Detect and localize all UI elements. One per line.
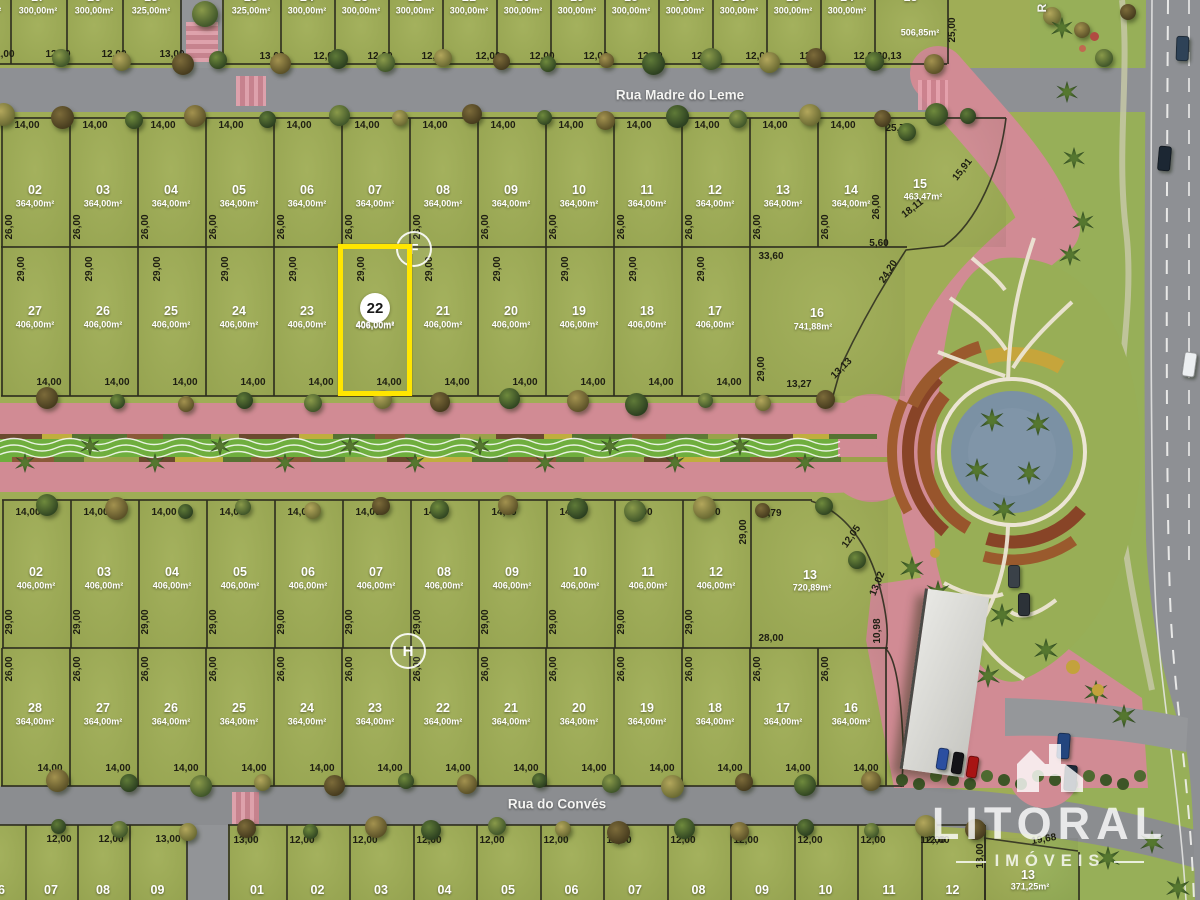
- dimension-label[interactable]: 26,00: [481, 214, 491, 239]
- lot-number[interactable]: 18: [640, 305, 654, 318]
- dimension-label[interactable]: 14,00: [218, 121, 243, 131]
- tree-icon[interactable]: [430, 392, 450, 412]
- dimension-label[interactable]: 14,00: [580, 378, 605, 388]
- dimension-label[interactable]: 26,00: [5, 214, 15, 239]
- dimension-label[interactable]: 26,00: [5, 656, 15, 681]
- dimension-label[interactable]: 29,00: [493, 256, 503, 281]
- lot-area[interactable]: 406,00m²: [152, 320, 191, 329]
- tree-icon[interactable]: [457, 774, 477, 794]
- lot-number[interactable]: 22: [408, 0, 422, 3]
- dimension-label[interactable]: 12,00: [46, 835, 71, 845]
- lot-area[interactable]: 300,00m²: [19, 7, 58, 16]
- dimension-label[interactable]: 26,00: [549, 656, 559, 681]
- dimension-label[interactable]: 12,00: [860, 836, 885, 846]
- lot-number[interactable]: 24: [232, 305, 246, 318]
- tree-icon[interactable]: [848, 551, 866, 569]
- lot-number[interactable]: 09: [504, 184, 518, 197]
- tree-icon[interactable]: [398, 773, 414, 789]
- dimension-label[interactable]: 26,00: [617, 656, 627, 681]
- dimension-label[interactable]: 14,00: [150, 121, 175, 131]
- tree-icon[interactable]: [816, 390, 835, 409]
- flower-bed-yellow[interactable]: [1092, 684, 1104, 696]
- dimension-label[interactable]: 29,00: [277, 609, 287, 634]
- lot-area[interactable]: 364,00m²: [560, 199, 599, 208]
- dimension-label[interactable]: 14,00: [173, 764, 198, 774]
- dimension-label[interactable]: 14,00: [649, 764, 674, 774]
- lot-number[interactable]: 16: [844, 702, 858, 715]
- lot-area[interactable]: 364,00m²: [16, 717, 55, 726]
- tree-icon[interactable]: [110, 394, 125, 409]
- dimension-label[interactable]: 26,00: [345, 214, 355, 239]
- dimension-label[interactable]: 14,00: [445, 764, 470, 774]
- lot-number[interactable]: 23: [368, 702, 382, 715]
- lot-number[interactable]: 27: [96, 702, 110, 715]
- lot-number[interactable]: 03: [96, 184, 110, 197]
- tree-icon[interactable]: [376, 53, 395, 72]
- dimension-label[interactable]: 29,00: [5, 609, 15, 634]
- dimension-label[interactable]: 13,00: [155, 835, 180, 845]
- tree-icon[interactable]: [392, 110, 408, 126]
- lot-number[interactable]: 12: [709, 566, 723, 579]
- lot-number[interactable]: 01: [250, 884, 264, 897]
- lot-number[interactable]: 06: [0, 884, 5, 897]
- lot-number[interactable]: 16: [732, 0, 746, 3]
- lot-number[interactable]: 19: [572, 305, 586, 318]
- lot-area[interactable]: 364,00m²: [764, 717, 803, 726]
- car-icon[interactable]: [1018, 593, 1030, 616]
- lot-area[interactable]: 720,89m²: [793, 584, 832, 593]
- dimension-label[interactable]: 14,00: [444, 378, 469, 388]
- dimension-label[interactable]: 29,00: [17, 256, 27, 281]
- dimension-label[interactable]: 26,00: [872, 194, 882, 219]
- lot-area[interactable]: 300,00m²: [558, 7, 597, 16]
- dimension-label[interactable]: 29,00: [549, 609, 559, 634]
- dimension-label[interactable]: 14,00: [286, 121, 311, 131]
- lot-area[interactable]: 300,00m²: [450, 7, 489, 16]
- dimension-label[interactable]: 12,00: [479, 836, 504, 846]
- lot-number[interactable]: 05: [233, 566, 247, 579]
- tree-icon[interactable]: [797, 819, 814, 836]
- tree-icon[interactable]: [865, 52, 884, 71]
- dimension-label[interactable]: 29,00: [739, 519, 749, 544]
- tree-icon[interactable]: [192, 1, 218, 27]
- lot-area[interactable]: 406,00m²: [84, 320, 123, 329]
- dimension-label[interactable]: 29,00: [413, 609, 423, 634]
- lot-number[interactable]: 10: [819, 884, 833, 897]
- dimension-label[interactable]: 14,00: [104, 378, 129, 388]
- lot-number[interactable]: 20: [516, 0, 530, 3]
- dimension-label[interactable]: 26,00: [685, 656, 695, 681]
- lot-number[interactable]: 28: [28, 702, 42, 715]
- lot-number[interactable]: 13: [803, 569, 817, 582]
- dimension-label[interactable]: 14,00: [172, 378, 197, 388]
- tree-icon[interactable]: [567, 498, 588, 519]
- dimension-label[interactable]: 29,00: [757, 356, 767, 381]
- lot-boundary[interactable]: [885, 648, 887, 786]
- tree-icon[interactable]: [755, 503, 770, 518]
- dimension-label[interactable]: 29,00: [85, 256, 95, 281]
- tree-icon[interactable]: [735, 773, 753, 791]
- lot-number[interactable]: 25: [232, 702, 246, 715]
- tree-icon[interactable]: [488, 817, 506, 835]
- tree-icon[interactable]: [532, 773, 547, 788]
- tree-icon[interactable]: [178, 396, 194, 412]
- tree-icon[interactable]: [430, 500, 449, 519]
- dimension-label[interactable]: 14,00: [581, 764, 606, 774]
- lot-number[interactable]: 07: [628, 884, 642, 897]
- lot-area[interactable]: 406,00m²: [492, 320, 531, 329]
- tree-icon[interactable]: [729, 110, 747, 128]
- tree-icon[interactable]: [184, 105, 206, 127]
- tree-icon[interactable]: [235, 499, 251, 515]
- dimension-label[interactable]: 26,00: [345, 656, 355, 681]
- dimension-label[interactable]: 26,00: [821, 656, 831, 681]
- lot-area[interactable]: 364,00m²: [288, 199, 327, 208]
- tree-icon[interactable]: [864, 823, 879, 838]
- dimension-label[interactable]: 26,00: [141, 656, 151, 681]
- lot[interactable]: [750, 500, 888, 648]
- lot-number[interactable]: 24: [300, 0, 314, 3]
- dimension-label[interactable]: 33,60: [758, 252, 783, 262]
- lot-number[interactable]: 25: [164, 305, 178, 318]
- lot-number[interactable]: 03: [374, 884, 388, 897]
- dimension-label[interactable]: 28,00: [758, 634, 783, 644]
- tree-icon[interactable]: [46, 769, 69, 792]
- lot-number[interactable]: 14: [840, 0, 854, 3]
- lot-area[interactable]: 406,00m²: [697, 581, 736, 590]
- tree-icon[interactable]: [259, 111, 276, 128]
- tree-icon[interactable]: [499, 388, 520, 409]
- hedge-shrub[interactable]: [913, 778, 925, 790]
- lot-number[interactable]: 10: [573, 566, 587, 579]
- dimension-label[interactable]: 29,00: [685, 609, 695, 634]
- dimension-label[interactable]: 29,00: [481, 609, 491, 634]
- lot-area[interactable]: 300,00m²: [612, 7, 651, 16]
- dimension-label[interactable]: 29,00: [345, 609, 355, 634]
- car-icon[interactable]: [1176, 36, 1190, 61]
- dimension-label[interactable]: 14,00: [785, 764, 810, 774]
- lot-number[interactable]: 09: [151, 884, 165, 897]
- lot-area[interactable]: 364,00m²: [832, 199, 871, 208]
- dimension-label[interactable]: 26,00: [277, 214, 287, 239]
- tree-icon[interactable]: [372, 497, 390, 515]
- lot-area[interactable]: 406,00m²: [17, 581, 56, 590]
- lot-area[interactable]: 406,00m²: [221, 581, 260, 590]
- dimension-label[interactable]: 26,00: [617, 214, 627, 239]
- lot-number[interactable]: 17: [708, 305, 722, 318]
- tree-icon[interactable]: [125, 111, 143, 129]
- lot-area[interactable]: 364,00m²: [220, 717, 259, 726]
- dimension-label[interactable]: 5,60: [869, 239, 888, 249]
- lot-number[interactable]: 17: [31, 0, 45, 3]
- dimension-label[interactable]: 25,00: [948, 17, 958, 42]
- lot-area[interactable]: 300,00m²: [75, 7, 114, 16]
- tree-icon[interactable]: [178, 504, 193, 519]
- dimension-label[interactable]: 29,00: [561, 256, 571, 281]
- lot-area[interactable]: 364,00m²: [356, 199, 395, 208]
- lot-area[interactable]: 364,00m²: [288, 717, 327, 726]
- dimension-label[interactable]: 14,00: [512, 378, 537, 388]
- lot-number[interactable]: 21: [462, 0, 476, 3]
- lot-number[interactable]: 04: [164, 184, 178, 197]
- lot-number[interactable]: 26: [96, 305, 110, 318]
- hedge-shrub[interactable]: [896, 774, 908, 786]
- dimension-label[interactable]: 26,00: [549, 214, 559, 239]
- tree-icon[interactable]: [324, 775, 345, 796]
- lot-area[interactable]: 406,00m²: [424, 320, 463, 329]
- tree-icon[interactable]: [599, 53, 614, 68]
- lot-area[interactable]: 406,00m²: [289, 581, 328, 590]
- tree-icon[interactable]: [209, 51, 227, 69]
- lot-area[interactable]: 406,00m²: [628, 320, 667, 329]
- lot-area[interactable]: 300,00m²: [342, 7, 381, 16]
- tree-icon[interactable]: [794, 774, 816, 796]
- tree-icon[interactable]: [303, 824, 318, 839]
- lot-area[interactable]: 364,00m²: [764, 199, 803, 208]
- dimension-label[interactable]: 14,00: [717, 764, 742, 774]
- lot-area[interactable]: 325,00m²: [132, 7, 171, 16]
- lot-number[interactable]: 09: [505, 566, 519, 579]
- tree-icon[interactable]: [925, 103, 948, 126]
- dimension-label[interactable]: 13,00: [233, 836, 258, 846]
- lot-number[interactable]: 20: [572, 702, 586, 715]
- tree-icon[interactable]: [567, 390, 589, 412]
- lot-number[interactable]: 09: [755, 884, 769, 897]
- lot-area[interactable]: 364,00m²: [492, 717, 531, 726]
- dimension-label[interactable]: 14,00: [309, 764, 334, 774]
- lot-number[interactable]: 12: [946, 884, 960, 897]
- lot-number[interactable]: 10: [572, 184, 586, 197]
- lot-area[interactable]: 364,00m²: [84, 717, 123, 726]
- lot-area[interactable]: 371,25m²: [1011, 883, 1050, 892]
- tree-icon[interactable]: [172, 53, 194, 75]
- tree-icon[interactable]: [236, 392, 253, 409]
- dimension-label[interactable]: 26,00: [73, 656, 83, 681]
- car-icon[interactable]: [1008, 565, 1020, 588]
- lot-number[interactable]: 03: [97, 566, 111, 579]
- flower-bed[interactable]: [1090, 32, 1099, 41]
- dimension-label[interactable]: 14,00: [490, 121, 515, 131]
- lot-number[interactable]: 25: [244, 0, 258, 3]
- lot-area[interactable]: 406,00m²: [220, 320, 259, 329]
- tree-icon[interactable]: [759, 52, 780, 73]
- tree-icon[interactable]: [540, 56, 556, 72]
- lot-area[interactable]: 325,00m²: [232, 7, 271, 16]
- tree-icon[interactable]: [105, 497, 128, 520]
- lot-number[interactable]: 08: [96, 884, 110, 897]
- lot-area[interactable]: 364,00m²: [152, 199, 191, 208]
- tree-icon[interactable]: [493, 53, 510, 70]
- lot-area[interactable]: 406,00m²: [560, 320, 599, 329]
- tree-icon[interactable]: [555, 821, 571, 837]
- lot-number[interactable]: 23: [300, 305, 314, 318]
- crosswalk[interactable]: [236, 76, 266, 106]
- dimension-label[interactable]: 26,00: [141, 214, 151, 239]
- lot-area[interactable]: 506,85m²: [901, 29, 940, 38]
- tree-icon[interactable]: [815, 497, 833, 515]
- lot-area[interactable]: 364,00m²: [424, 199, 463, 208]
- lot-area[interactable]: 300,00m²: [720, 7, 759, 16]
- dimension-label[interactable]: 14,00: [354, 121, 379, 131]
- tree-icon[interactable]: [924, 54, 944, 74]
- lot-number[interactable]: 04: [165, 566, 179, 579]
- lot-area[interactable]: 406,00m²: [153, 581, 192, 590]
- flower-bed[interactable]: [1079, 45, 1086, 52]
- dimension-label[interactable]: 12,00: [797, 836, 822, 846]
- dimension-label[interactable]: 29,00: [209, 609, 219, 634]
- tree-icon[interactable]: [698, 393, 713, 408]
- tree-icon[interactable]: [111, 821, 128, 838]
- lot-area[interactable]: 364,00m²: [696, 199, 735, 208]
- lot-area[interactable]: 364,00m²: [628, 717, 667, 726]
- dimension-label[interactable]: 14,00: [240, 378, 265, 388]
- lot-area[interactable]: 364,00m²: [152, 717, 191, 726]
- tree-icon[interactable]: [304, 394, 322, 412]
- tree-icon[interactable]: [421, 820, 441, 840]
- lot-area[interactable]: 406,00m²: [561, 581, 600, 590]
- lot-area[interactable]: 364,00m²: [696, 717, 735, 726]
- tree-icon[interactable]: [462, 104, 482, 124]
- dimension-label[interactable]: 29,00: [221, 256, 231, 281]
- lot-area[interactable]: 364,00m²: [220, 199, 259, 208]
- tree-icon[interactable]: [328, 49, 348, 69]
- lot-number[interactable]: 17: [776, 702, 790, 715]
- lot-number[interactable]: 16: [87, 0, 101, 3]
- lot-area[interactable]: 364,00m²: [560, 717, 599, 726]
- dimension-label[interactable]: 14,00: [241, 764, 266, 774]
- dimension-label[interactable]: 14,00: [558, 121, 583, 131]
- tree-icon[interactable]: [700, 48, 722, 70]
- tree-icon[interactable]: [806, 48, 826, 68]
- tree-icon[interactable]: [666, 105, 689, 128]
- lot-number[interactable]: 07: [369, 566, 383, 579]
- tree-icon[interactable]: [1095, 49, 1113, 67]
- lot-area[interactable]: 300,00m²: [0, 7, 1, 16]
- tree-icon[interactable]: [625, 393, 648, 416]
- tree-icon[interactable]: [607, 821, 630, 844]
- lot-number[interactable]: 15: [913, 178, 927, 191]
- dimension-label[interactable]: 14,00: [830, 121, 855, 131]
- dimension-label[interactable]: 26,00: [209, 656, 219, 681]
- dimension-label[interactable]: 14,00: [762, 121, 787, 131]
- dimension-label[interactable]: 14,00: [716, 378, 741, 388]
- dimension-label[interactable]: 14,00: [14, 121, 39, 131]
- lot-area[interactable]: 364,00m²: [628, 199, 667, 208]
- lot-number[interactable]: 02: [28, 184, 42, 197]
- dimension-label[interactable]: 26,00: [209, 214, 219, 239]
- lot-number[interactable]: 05: [232, 184, 246, 197]
- lot-number[interactable]: 11: [640, 184, 653, 197]
- dimension-label[interactable]: 26,00: [753, 656, 763, 681]
- lot-number[interactable]: 22: [436, 702, 450, 715]
- lot-number[interactable]: 11: [882, 884, 895, 897]
- lot-number[interactable]: 23: [354, 0, 368, 3]
- tree-icon[interactable]: [498, 495, 518, 515]
- lot-number[interactable]: 06: [565, 884, 579, 897]
- lot-area[interactable]: 463,47m²: [904, 193, 943, 202]
- dimension-label[interactable]: 14,00: [422, 121, 447, 131]
- lot-number[interactable]: 06: [300, 184, 314, 197]
- lot-area[interactable]: 300,00m²: [828, 7, 867, 16]
- dimension-label[interactable]: 29,00: [629, 256, 639, 281]
- tree-icon[interactable]: [51, 819, 66, 834]
- lot-number[interactable]: 13: [776, 184, 790, 197]
- lot-area[interactable]: 300,00m²: [666, 7, 705, 16]
- lot-area[interactable]: 406,00m²: [288, 320, 327, 329]
- dimension-label[interactable]: 14,00: [105, 764, 130, 774]
- lot-area[interactable]: 406,00m²: [493, 581, 532, 590]
- tree-icon[interactable]: [537, 110, 552, 125]
- tree-icon[interactable]: [596, 111, 615, 130]
- tree-icon[interactable]: [1120, 4, 1136, 20]
- lot-area[interactable]: 406,00m²: [425, 581, 464, 590]
- lot-number[interactable]: 27: [28, 305, 42, 318]
- lot-number[interactable]: 21: [504, 702, 518, 715]
- lot-number[interactable]: 12: [708, 184, 722, 197]
- lot-area[interactable]: 406,00m²: [16, 320, 55, 329]
- tree-icon[interactable]: [730, 822, 749, 841]
- dimension-label[interactable]: 13,27: [786, 380, 811, 390]
- tree-icon[interactable]: [434, 49, 452, 67]
- lot-number[interactable]: 16: [810, 307, 824, 320]
- dimension-label[interactable]: 26,00: [821, 214, 831, 239]
- dimension-label[interactable]: 14,00: [151, 508, 176, 518]
- lot-number[interactable]: 19: [640, 702, 654, 715]
- dimension-label[interactable]: 26,00: [73, 214, 83, 239]
- dimension-label[interactable]: 29,00: [141, 609, 151, 634]
- lot-area[interactable]: 300,00m²: [396, 7, 435, 16]
- lot-area[interactable]: 364,00m²: [832, 717, 871, 726]
- tree-icon[interactable]: [179, 823, 197, 841]
- lot-number[interactable]: 17: [678, 0, 692, 3]
- lot-number[interactable]: 13: [904, 0, 918, 3]
- car-icon[interactable]: [1157, 145, 1172, 171]
- dimension-label[interactable]: 29,00: [617, 609, 627, 634]
- lot-number[interactable]: 06: [301, 566, 315, 579]
- lot-area[interactable]: 300,00m²: [504, 7, 543, 16]
- lot-number[interactable]: 07: [368, 184, 382, 197]
- tree-icon[interactable]: [120, 774, 138, 792]
- dimension-label[interactable]: 26,00: [277, 656, 287, 681]
- lot-number[interactable]: 18: [708, 702, 722, 715]
- lot-area[interactable]: 364,00m²: [16, 199, 55, 208]
- tree-icon[interactable]: [237, 819, 256, 838]
- dimension-label[interactable]: 14,00: [648, 378, 673, 388]
- lot-area[interactable]: 364,00m²: [356, 717, 395, 726]
- lot-number[interactable]: 04: [438, 884, 452, 897]
- dimension-label[interactable]: 29,00: [73, 609, 83, 634]
- tree-icon[interactable]: [898, 123, 916, 141]
- tree-icon[interactable]: [861, 771, 881, 791]
- dimension-label[interactable]: 14,00: [626, 121, 651, 131]
- lot-number[interactable]: 07: [44, 884, 58, 897]
- lot-area[interactable]: 300,00m²: [774, 7, 813, 16]
- dimension-label[interactable]: 26,00: [685, 214, 695, 239]
- tree-icon[interactable]: [52, 49, 70, 67]
- lot-area[interactable]: 406,00m²: [85, 581, 124, 590]
- lot-area[interactable]: 364,00m²: [84, 199, 123, 208]
- lot-number[interactable]: 21: [436, 305, 450, 318]
- tree-icon[interactable]: [642, 52, 665, 75]
- lot-number[interactable]: 26: [164, 702, 178, 715]
- lot-area[interactable]: 364,00m²: [492, 199, 531, 208]
- flower-bed-yellow[interactable]: [930, 548, 940, 558]
- tree-icon[interactable]: [661, 775, 684, 798]
- lot-number[interactable]: 14: [844, 184, 858, 197]
- tree-icon[interactable]: [190, 775, 212, 797]
- dimension-label[interactable]: 14,00: [377, 764, 402, 774]
- lot-number[interactable]: 08: [437, 566, 451, 579]
